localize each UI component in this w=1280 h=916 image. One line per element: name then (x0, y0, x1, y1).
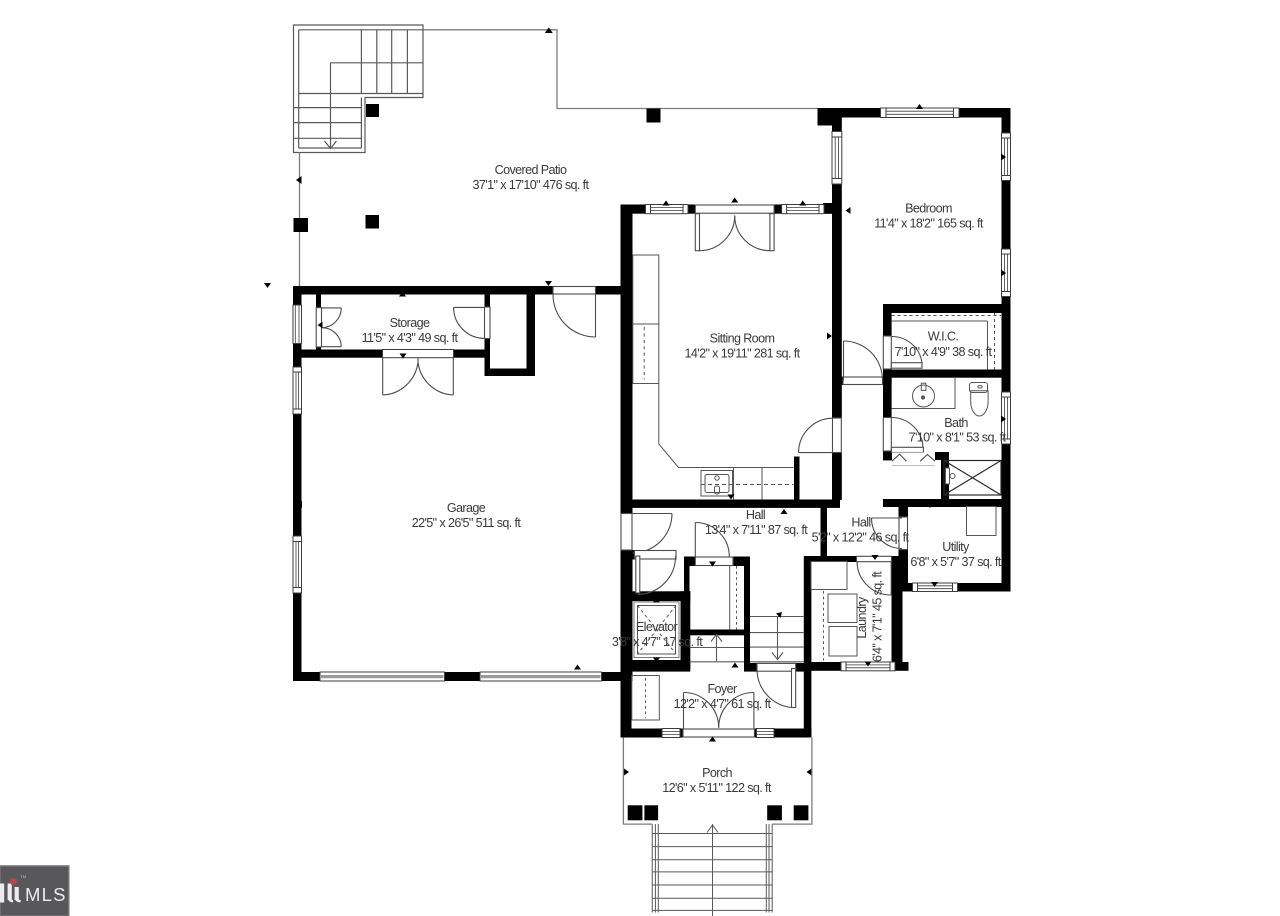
svg-text:W.I.C.: W.I.C. (928, 330, 959, 344)
svg-text:Hall: Hall (746, 508, 765, 522)
svg-text:7'10" x 8'1" 53 sq. ft: 7'10" x 8'1" 53 sq. ft (909, 431, 1007, 445)
svg-text:6'4" x 7'1" 45 sq. ft: 6'4" x 7'1" 45 sq. ft (871, 571, 885, 662)
svg-text:5'2" x 12'2" 46 sq. ft: 5'2" x 12'2" 46 sq. ft (812, 531, 910, 545)
svg-text:11'5" x 4'3" 49 sq. ft: 11'5" x 4'3" 49 sq. ft (362, 331, 459, 345)
svg-text:Bath: Bath (944, 416, 968, 430)
svg-text:™: ™ (20, 875, 27, 882)
svg-text:Porch: Porch (702, 766, 732, 780)
svg-text:Foyer: Foyer (707, 682, 737, 696)
svg-text:Sitting Room: Sitting Room (710, 332, 775, 346)
svg-text:Elevator: Elevator (636, 620, 678, 634)
svg-text:11'4" x 18'2" 165 sq. ft: 11'4" x 18'2" 165 sq. ft (874, 217, 984, 231)
svg-text:12'2" x 4'7" 61 sq. ft: 12'2" x 4'7" 61 sq. ft (674, 697, 772, 711)
svg-text:3'8" x 4'7" 17 sq. ft: 3'8" x 4'7" 17 sq. ft (612, 635, 703, 649)
svg-text:Bedroom: Bedroom (905, 202, 952, 216)
svg-text:37'1" x 17'10" 476 sq. ft: 37'1" x 17'10" 476 sq. ft (473, 178, 590, 192)
svg-text:14'2" x 19'11" 281 sq. ft: 14'2" x 19'11" 281 sq. ft (685, 347, 801, 361)
svg-text:Laundry: Laundry (855, 596, 869, 638)
svg-text:22'5" x 26'5" 511 sq. ft: 22'5" x 26'5" 511 sq. ft (412, 516, 522, 530)
svg-text:6'8" x 5'7" 37 sq. ft: 6'8" x 5'7" 37 sq. ft (910, 555, 1001, 569)
svg-text:Garage: Garage (447, 501, 486, 515)
svg-text:Utility: Utility (942, 540, 970, 554)
svg-text:Storage: Storage (390, 316, 430, 330)
svg-text:Hall: Hall (851, 516, 870, 530)
svg-text:12'6" x 5'11" 122 sq. ft: 12'6" x 5'11" 122 sq. ft (662, 781, 772, 795)
svg-text:13'4" x 7'11" 87 sq. ft: 13'4" x 7'11" 87 sq. ft (705, 523, 808, 537)
svg-text:MLS: MLS (25, 884, 67, 905)
svg-text:7'10" x 4'9" 38 sq. ft: 7'10" x 4'9" 38 sq. ft (895, 345, 993, 359)
svg-text:Covered Patio: Covered Patio (495, 163, 567, 177)
